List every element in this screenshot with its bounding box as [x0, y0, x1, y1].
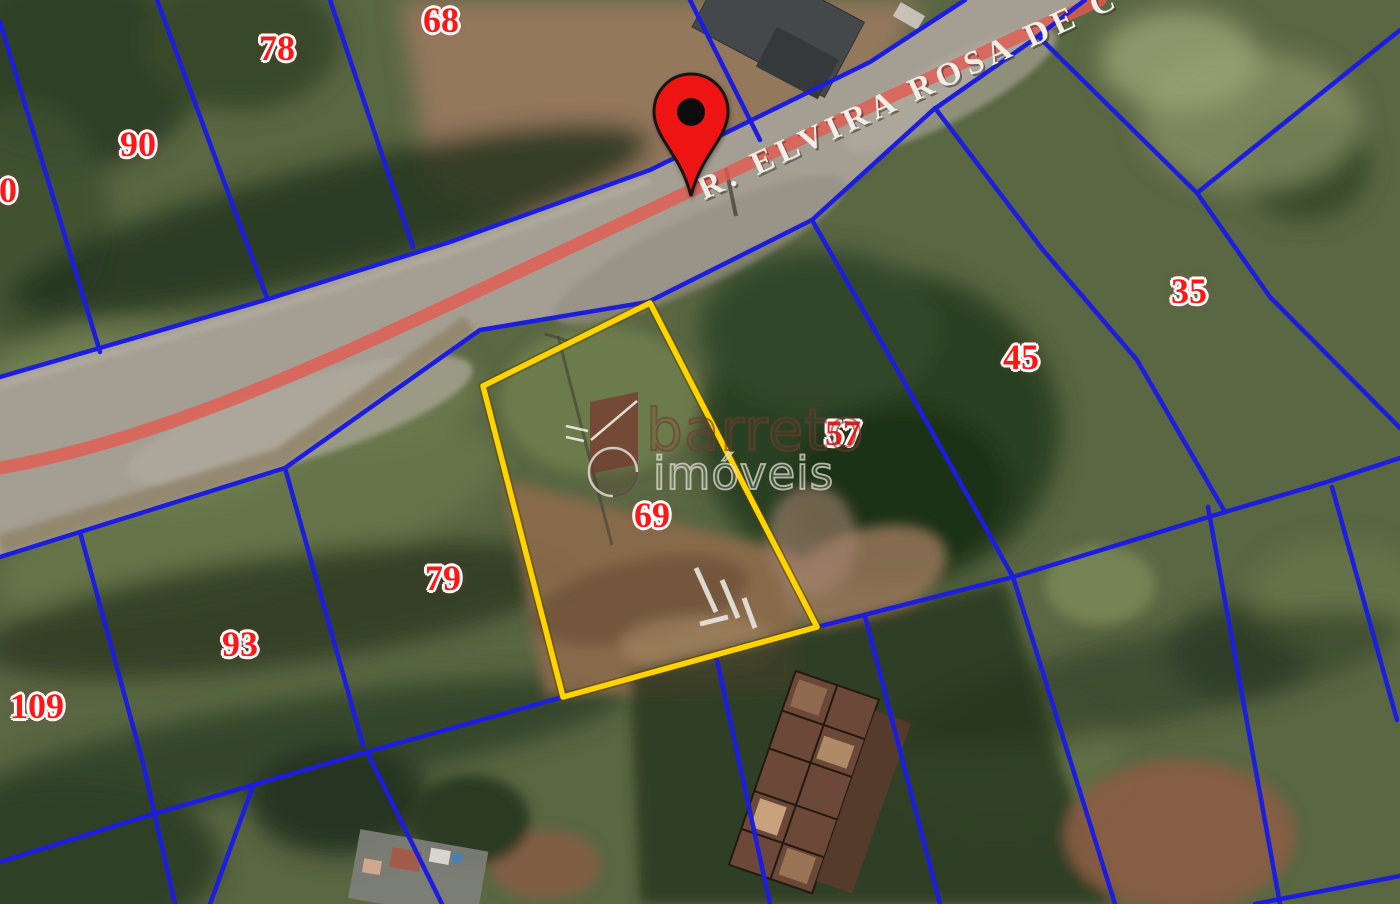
location-pin-icon[interactable] — [649, 70, 733, 202]
aerial-map[interactable]: R. ELVIRA ROSA DE C R. ELVIRA ROSA DE C … — [0, 0, 1400, 904]
